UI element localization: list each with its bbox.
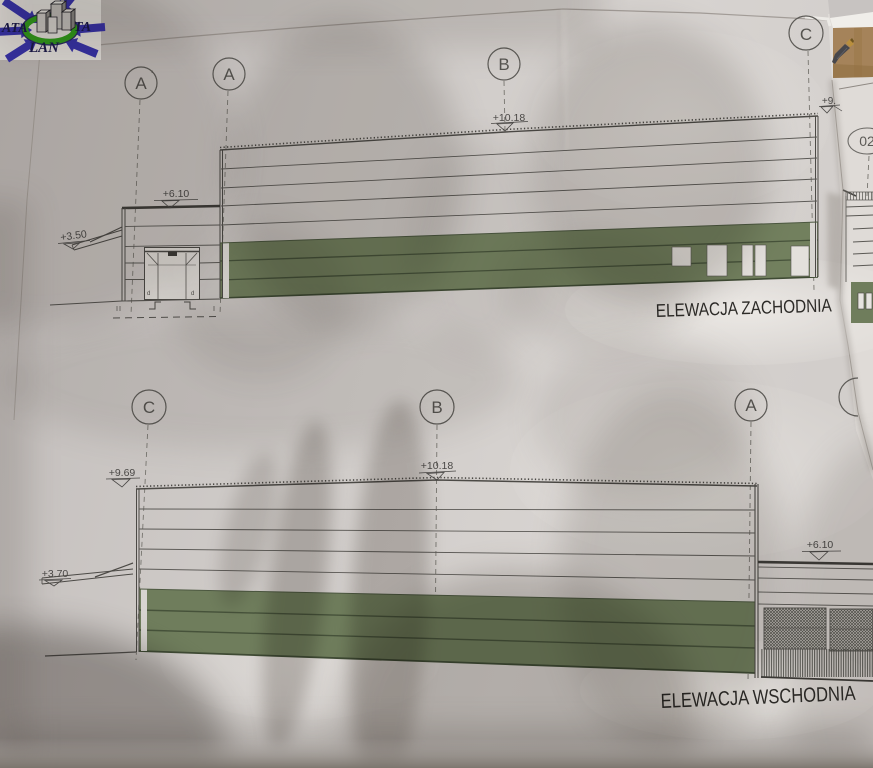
svg-text:B: B: [498, 55, 509, 74]
svg-text:C: C: [800, 25, 812, 44]
svg-text:+9.69: +9.69: [109, 467, 136, 479]
svg-text:+10.18: +10.18: [421, 460, 454, 472]
svg-text:+3.70: +3.70: [42, 568, 69, 580]
svg-text:02: 02: [859, 133, 873, 149]
svg-text:A: A: [223, 65, 235, 84]
